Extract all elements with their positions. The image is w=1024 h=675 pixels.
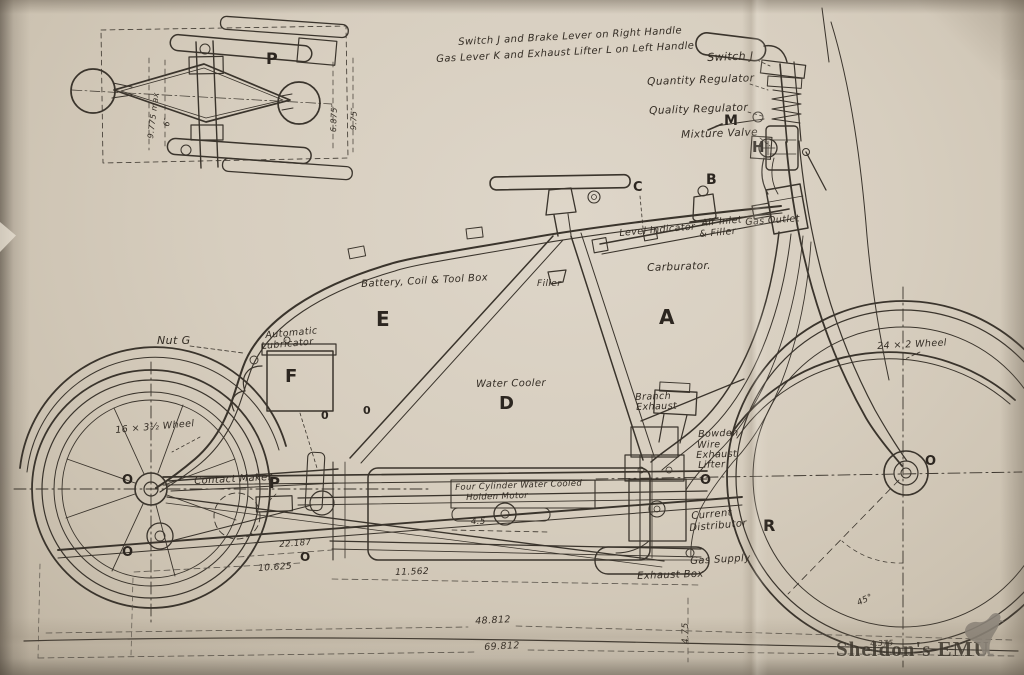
frame	[58, 206, 811, 567]
carburetor-top-fittings	[348, 186, 791, 284]
emu-icon	[952, 610, 1010, 664]
motorcycle-drawing	[0, 0, 1024, 675]
handlebar-plan-inset	[71, 16, 353, 180]
front-fork-and-controls	[695, 8, 907, 466]
scanned-drawing-page: Switch J and Brake Lever on Right Handle…	[0, 0, 1024, 675]
